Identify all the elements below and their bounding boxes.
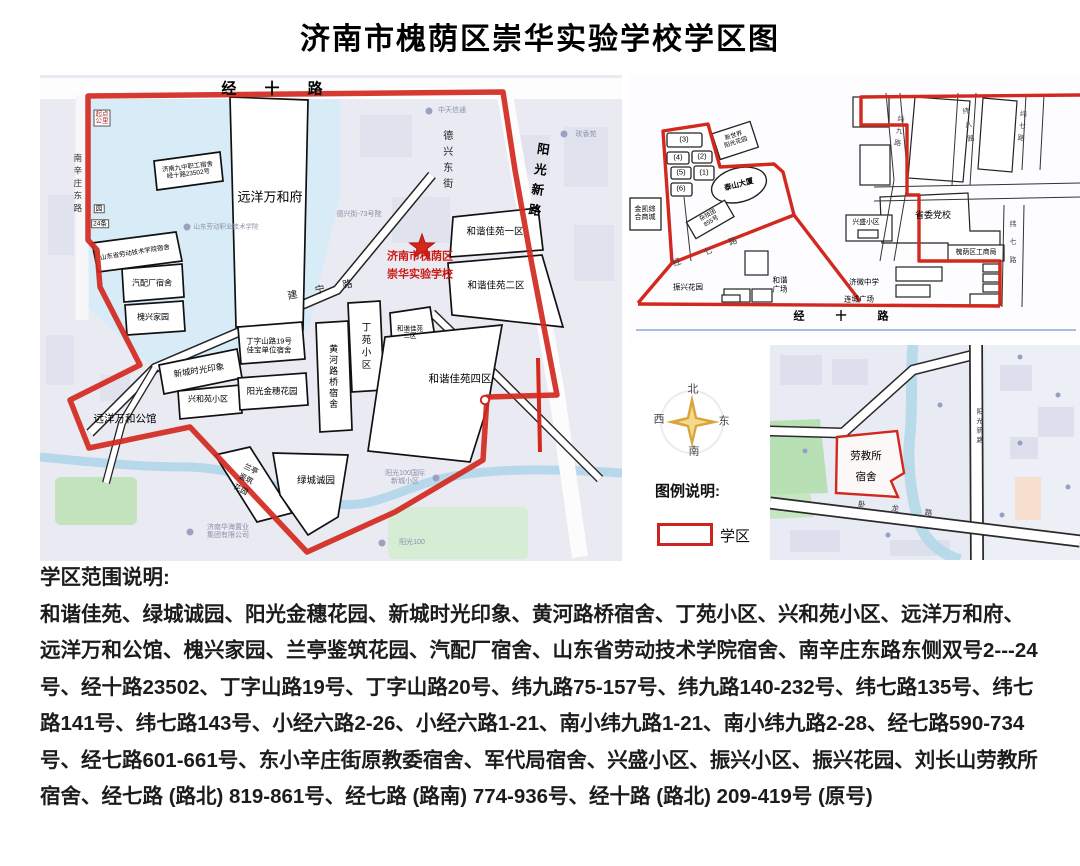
park-green (55, 477, 137, 525)
jinkai-line2: 合商城 (635, 214, 656, 222)
poi-dexingjie73: 德兴街-73号院 (336, 211, 381, 219)
boundary-mark-line (538, 358, 540, 452)
gongshangju-label: 槐荫区工商局 (956, 249, 997, 257)
poi-meixiangyuan: 玫香苑 (576, 131, 597, 139)
poi-pin-laodongzhiye (184, 224, 191, 231)
compass-east: 东 (719, 416, 730, 429)
poi-yangguang100-guoji: 阳光100国际 新城小区 (385, 470, 425, 486)
legend-district-label: 学区 (720, 525, 750, 546)
description-line: 号、经七路601-661号、东小辛庄街原教委宿舍、军代局宿舍、兴盛小区、振兴小区… (40, 743, 1045, 780)
parcel-hexie3: 和谐佳苑 三区 (397, 326, 423, 341)
description-line: 号、经十路23502、丁字山路19号、丁字山路20号、纬九路75-157号、纬九… (40, 670, 1045, 707)
site-inset-canvas (770, 345, 1080, 560)
schematic-inset-map: (3) (4) (2) (5) (1) (6) 泰山大厦 杂技团 855号 新世… (628, 75, 1080, 340)
poi-huahai: 济南华海置业 集团有限公司 (207, 524, 249, 540)
school-name-line1: 济南市槐荫区 (387, 248, 453, 266)
page-title: 济南市槐荫区崇华实验学校学区图 (0, 14, 1080, 58)
shengwei-label: 省委党校 (915, 210, 951, 220)
parcel-hexie1: 和谐佳苑一区 (466, 228, 523, 239)
legend-district-swatch (657, 523, 713, 546)
poi-zhongtian: 中天信通 (438, 107, 466, 115)
zhenxing-label: 振兴花园 (673, 284, 703, 293)
parcel-dingzishan: 丁字山路19号 佳宝单位宿舍 (246, 337, 292, 354)
poi-pin-huahai (187, 529, 194, 536)
poi-yangguang100-guoji-line1: 阳光100国际 (385, 470, 425, 478)
district-scope-description: 学区范围说明: 和谐佳苑、绿城诚园、阳光金穗花园、新城时光印象、黄河路桥宿舍、丁… (40, 560, 1045, 816)
parcel-dingyuan: 丁苑小区 (359, 322, 370, 372)
laojiao-line2: 宿舍 (850, 467, 882, 488)
marker-24tiao: 24条 (91, 219, 109, 228)
compass-rose: 北 西 东 南 (645, 360, 765, 480)
parcel-hexie3-line2: 三区 (397, 333, 423, 340)
marker-yuan: 园 (94, 204, 105, 213)
compass-south: 南 (689, 446, 700, 459)
xingsheng-label: 兴盛小区 (852, 219, 879, 227)
jinkai-label: 金凯综 合商城 (635, 206, 656, 222)
school-district-map-page: 济南市槐荫区崇华实验学校学区图 (0, 0, 1080, 866)
jinkai-line1: 金凯综 (635, 206, 656, 214)
parcel-huaixing: 槐兴家园 (137, 312, 169, 321)
plot-num-1: (1) (699, 169, 708, 178)
plot-num-3: (3) (679, 136, 688, 145)
description-line: 宿舍、经七路 (路北) 819-861号、经七路 (路南) 774-936号、经… (40, 779, 1045, 816)
parcel-xingheyuan: 兴和苑小区 (188, 394, 228, 403)
road-label-nanxinzhuangdonglu: 南辛庄东路 (72, 154, 82, 217)
schematic-road-weiqilu-b: 纬七路 (1008, 220, 1016, 274)
compass-west: 西 (654, 414, 665, 427)
poi-pin-meixiangyuan (561, 131, 568, 138)
school-name-line2: 崇华实验学校 (387, 266, 453, 284)
hexie-gc-line2: 广场 (773, 285, 788, 294)
schematic-road-jingshilu: 经 十 路 (793, 311, 902, 324)
laojiao-line1: 劳教所 (850, 446, 882, 467)
description-line: 远洋万和公馆、槐兴家园、兰亭鉴筑花园、汽配厂宿舍、山东省劳动技术学院宿舍、南辛庄… (40, 633, 1045, 670)
parcel-hexie2: 和谐佳苑二区 (467, 282, 524, 293)
description-line: 和谐佳苑、绿城诚园、阳光金穗花园、新城时光印象、黄河路桥宿舍、丁苑小区、兴和苑小… (40, 597, 1045, 634)
laojiao-label: 劳教所 宿舍 (850, 446, 882, 488)
road-label-jingshilu: 经 十 路 (221, 80, 334, 97)
poi-pin-yangguang100 (379, 540, 386, 547)
poi-huahai-line2: 集团有限公司 (207, 532, 249, 540)
marker-qidian-line2: 公里 (96, 118, 109, 125)
site-orange-block (1015, 477, 1041, 520)
marker-qidian: 起点 公里 (94, 110, 111, 127)
parcel-hexie4: 和谐佳苑四区 (429, 373, 492, 385)
site-inset-map: 劳教所 宿舍 阳光新路 卧 龙 路 (770, 345, 1080, 560)
plot-num-2: (2) (697, 153, 706, 162)
plot-num-4: (4) (673, 154, 682, 163)
parcel-lvcheng: 绿城诚园 (297, 477, 335, 488)
poi-yangguang100-guoji-line2: 新城小区 (385, 478, 425, 486)
parcel-yuanyang-gongguan: 远洋万和公馆 (94, 413, 157, 425)
hexie-guangchang-label: 和谐 广场 (773, 276, 788, 293)
parcel-dingzishan-line2: 佳宝单位宿舍 (246, 346, 292, 355)
poi-pin-yangguang100guoji (433, 475, 440, 482)
main-district-map: 经 十 路 南辛庄东路 德兴东街 阳光新路 建宁路 远洋万和府 济南九中职工宿舍… (40, 75, 622, 561)
poi-yangguang100: 阳光100 (399, 539, 425, 547)
jiwei-label: 济微中学 (849, 279, 879, 288)
legend-heading: 图例说明: (655, 480, 720, 501)
description-line: 路141号、纬七路143号、小经六路2-26、小经六路1-21、南小纬九路1-2… (40, 706, 1045, 743)
parcel-yuanyang-wanhefu: 远洋万和府 (237, 191, 302, 206)
parcel-yangguangjinsui: 阳光金穗花园 (246, 387, 297, 397)
parcel-huanghe-luqiao: 黄河路桥宿舍 (328, 344, 338, 410)
poi-pin-zhongtian (426, 108, 433, 115)
liancheng-label: 连城广场 (844, 296, 874, 305)
site-road-yangguangxinlu: 阳光新路 (974, 408, 981, 446)
poi-huahai-line1: 济南华海置业 (207, 524, 249, 532)
plot-num-5: (5) (676, 169, 685, 178)
park-green-2 (388, 507, 528, 559)
parcel-qipeichang: 汽配厂宿舍 (132, 278, 172, 287)
poi-laodongzhiye: 山东劳动职业技术学院 (194, 223, 259, 230)
compass-north: 北 (688, 384, 699, 397)
school-name-caption: 济南市槐荫区 崇华实验学校 (387, 248, 453, 283)
boundary-node (481, 396, 489, 404)
plot-num-6: (6) (676, 185, 685, 194)
road-label-dexingdongjie: 德兴东街 (440, 130, 452, 194)
description-heading: 学区范围说明: (40, 560, 1045, 597)
